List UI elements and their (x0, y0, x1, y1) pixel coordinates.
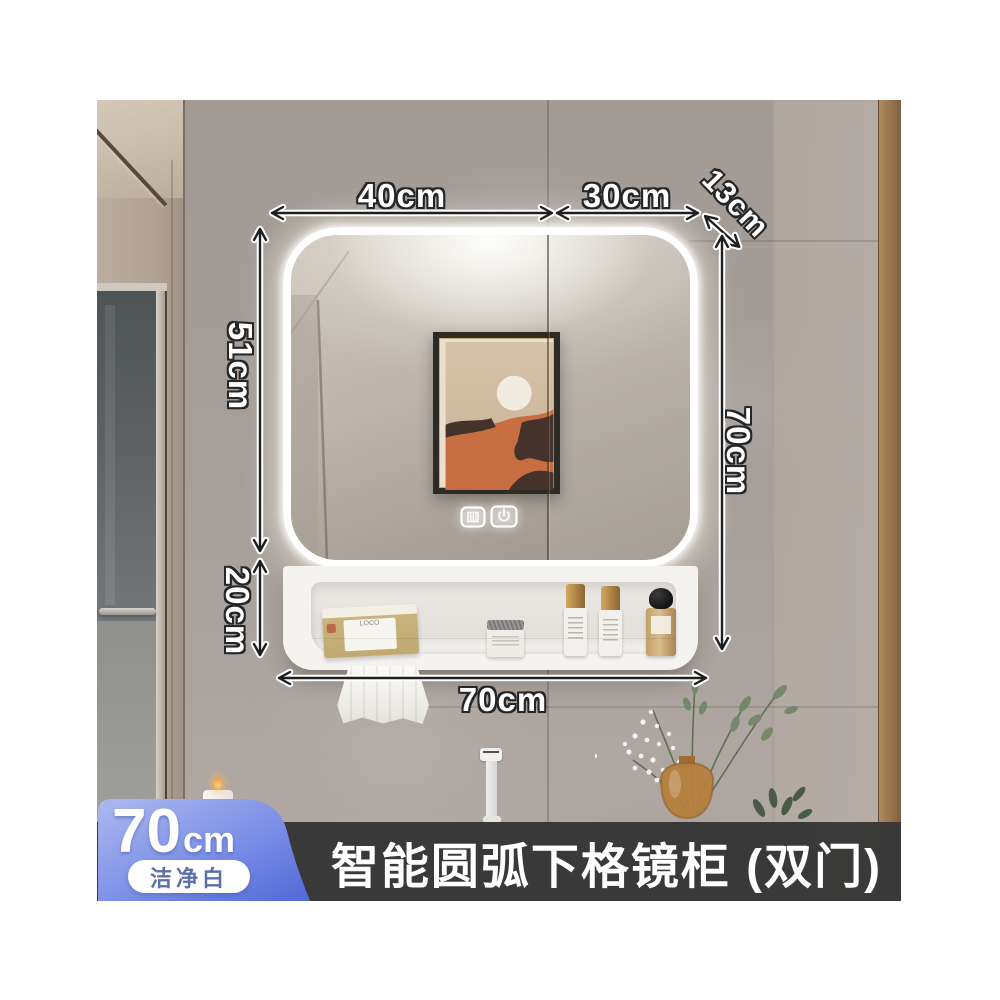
faucet (480, 748, 502, 761)
tissue-box: LOCO (322, 604, 419, 659)
cream-jar (487, 628, 524, 657)
shower-towel-bar (99, 608, 156, 615)
dim-label-30cm: 30cm (583, 177, 671, 215)
hand-towel (337, 666, 429, 724)
badge-size-unit: cm (183, 822, 235, 858)
dim-label-40cm: 40cm (358, 177, 446, 215)
spray-bottle (564, 607, 587, 656)
mirror-surface (291, 235, 690, 560)
dim-label-51cm: 51cm (221, 322, 259, 410)
foliage-sprig (745, 778, 815, 826)
badge-size-value: 70 (112, 801, 181, 863)
perfume-bottle (646, 608, 676, 656)
art-frame (433, 332, 560, 494)
open-shelf: LOCO (311, 582, 676, 654)
defog-icon[interactable] (460, 506, 486, 528)
tissue-brand: LOCO (360, 620, 380, 628)
bathroom-photo: LOCO (97, 100, 901, 901)
dim-label-20cm: 20cm (218, 567, 256, 655)
badge-finish: 洁净白 (128, 860, 250, 893)
left-wall (97, 100, 185, 901)
size-badge: 70 cm 洁净白 (98, 799, 313, 901)
spray-bottle (599, 609, 622, 656)
product-title: 智能圆弧下格镜柜 (双门) (331, 827, 882, 897)
power-icon[interactable] (490, 505, 518, 528)
wood-trim (878, 100, 901, 826)
perfume-cap (649, 588, 673, 609)
desert-art (443, 342, 556, 490)
dim-label-70cm-right: 70cm (719, 407, 757, 495)
product-image: LOCO (0, 0, 1000, 1000)
dim-label-70cm-bottom: 70cm (459, 681, 547, 719)
candle-flame (214, 777, 222, 789)
